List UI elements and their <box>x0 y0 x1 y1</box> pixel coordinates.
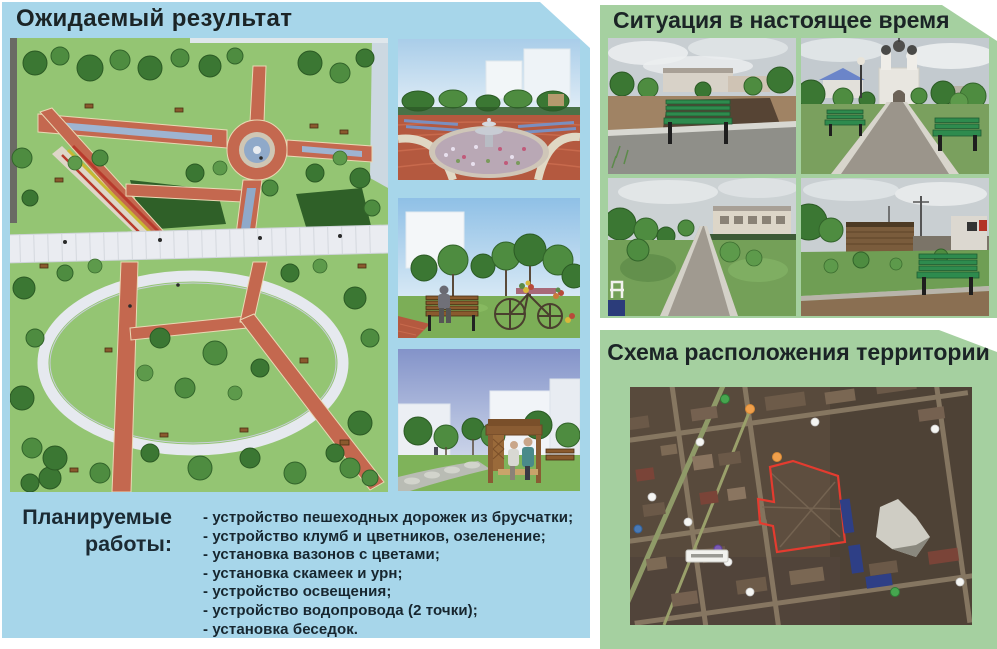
photo-3-image <box>608 178 796 316</box>
planned-works-item: - устройство пешеходных дорожек из брусч… <box>203 509 573 528</box>
map-pin-green <box>721 395 730 404</box>
photo-2-image <box>801 38 989 174</box>
planned-works-item: - установка вазонов с цветами; <box>203 546 573 565</box>
gazebo-render-image <box>398 349 580 491</box>
location-scheme-title: Схема расположения территории <box>600 339 997 366</box>
planned-works-label: Планируемые работы: <box>20 504 172 558</box>
park-plan-render-image <box>10 38 388 492</box>
photo-bench-on-unpaved-ground <box>608 38 796 174</box>
satellite-map <box>630 387 972 625</box>
panel-location-scheme: Схема расположения территории <box>600 330 997 649</box>
bench-bicycle-render-image <box>398 198 580 338</box>
panel-current-situation: Ситуация в настоящее время <box>600 5 997 318</box>
panel-expected-result: Ожидаемый результат <box>2 2 590 638</box>
satellite-map-image <box>630 387 972 625</box>
planned-works-label-line2: работы: <box>85 532 172 556</box>
planned-works-item: - устройство освещения; <box>203 583 573 602</box>
park-plan-render <box>10 38 388 492</box>
bench-bicycle-render <box>398 198 580 338</box>
photo-alley-to-church <box>801 38 989 174</box>
current-situation-title: Ситуация в настоящее время <box>613 7 950 34</box>
project-slide: Ожидаемый результат <box>0 0 997 649</box>
photo-1-image <box>608 38 796 174</box>
planned-works-list: - устройство пешеходных дорожек из брусч… <box>203 509 573 639</box>
photo-narrow-footpath <box>608 178 796 316</box>
fountain-plaza-render <box>398 39 580 180</box>
map-label <box>686 550 728 562</box>
photo-4-image <box>801 178 989 316</box>
expected-result-title: Ожидаемый результат <box>16 5 292 33</box>
planned-works-item: - устройство водопровода (2 точки); <box>203 602 573 621</box>
planned-works-item: - установка скамеек и урн; <box>203 565 573 584</box>
planned-works-item: - устройство клумб и цветников, озеленен… <box>203 528 573 547</box>
gazebo-render <box>398 349 580 491</box>
planned-works-item: - установка беседок. <box>203 621 573 640</box>
planned-works-label-line1: Планируемые <box>22 505 172 529</box>
photo-lawn-with-bench <box>801 178 989 316</box>
map-pin-green <box>891 588 900 597</box>
fountain-plaza-render-image <box>398 39 580 180</box>
